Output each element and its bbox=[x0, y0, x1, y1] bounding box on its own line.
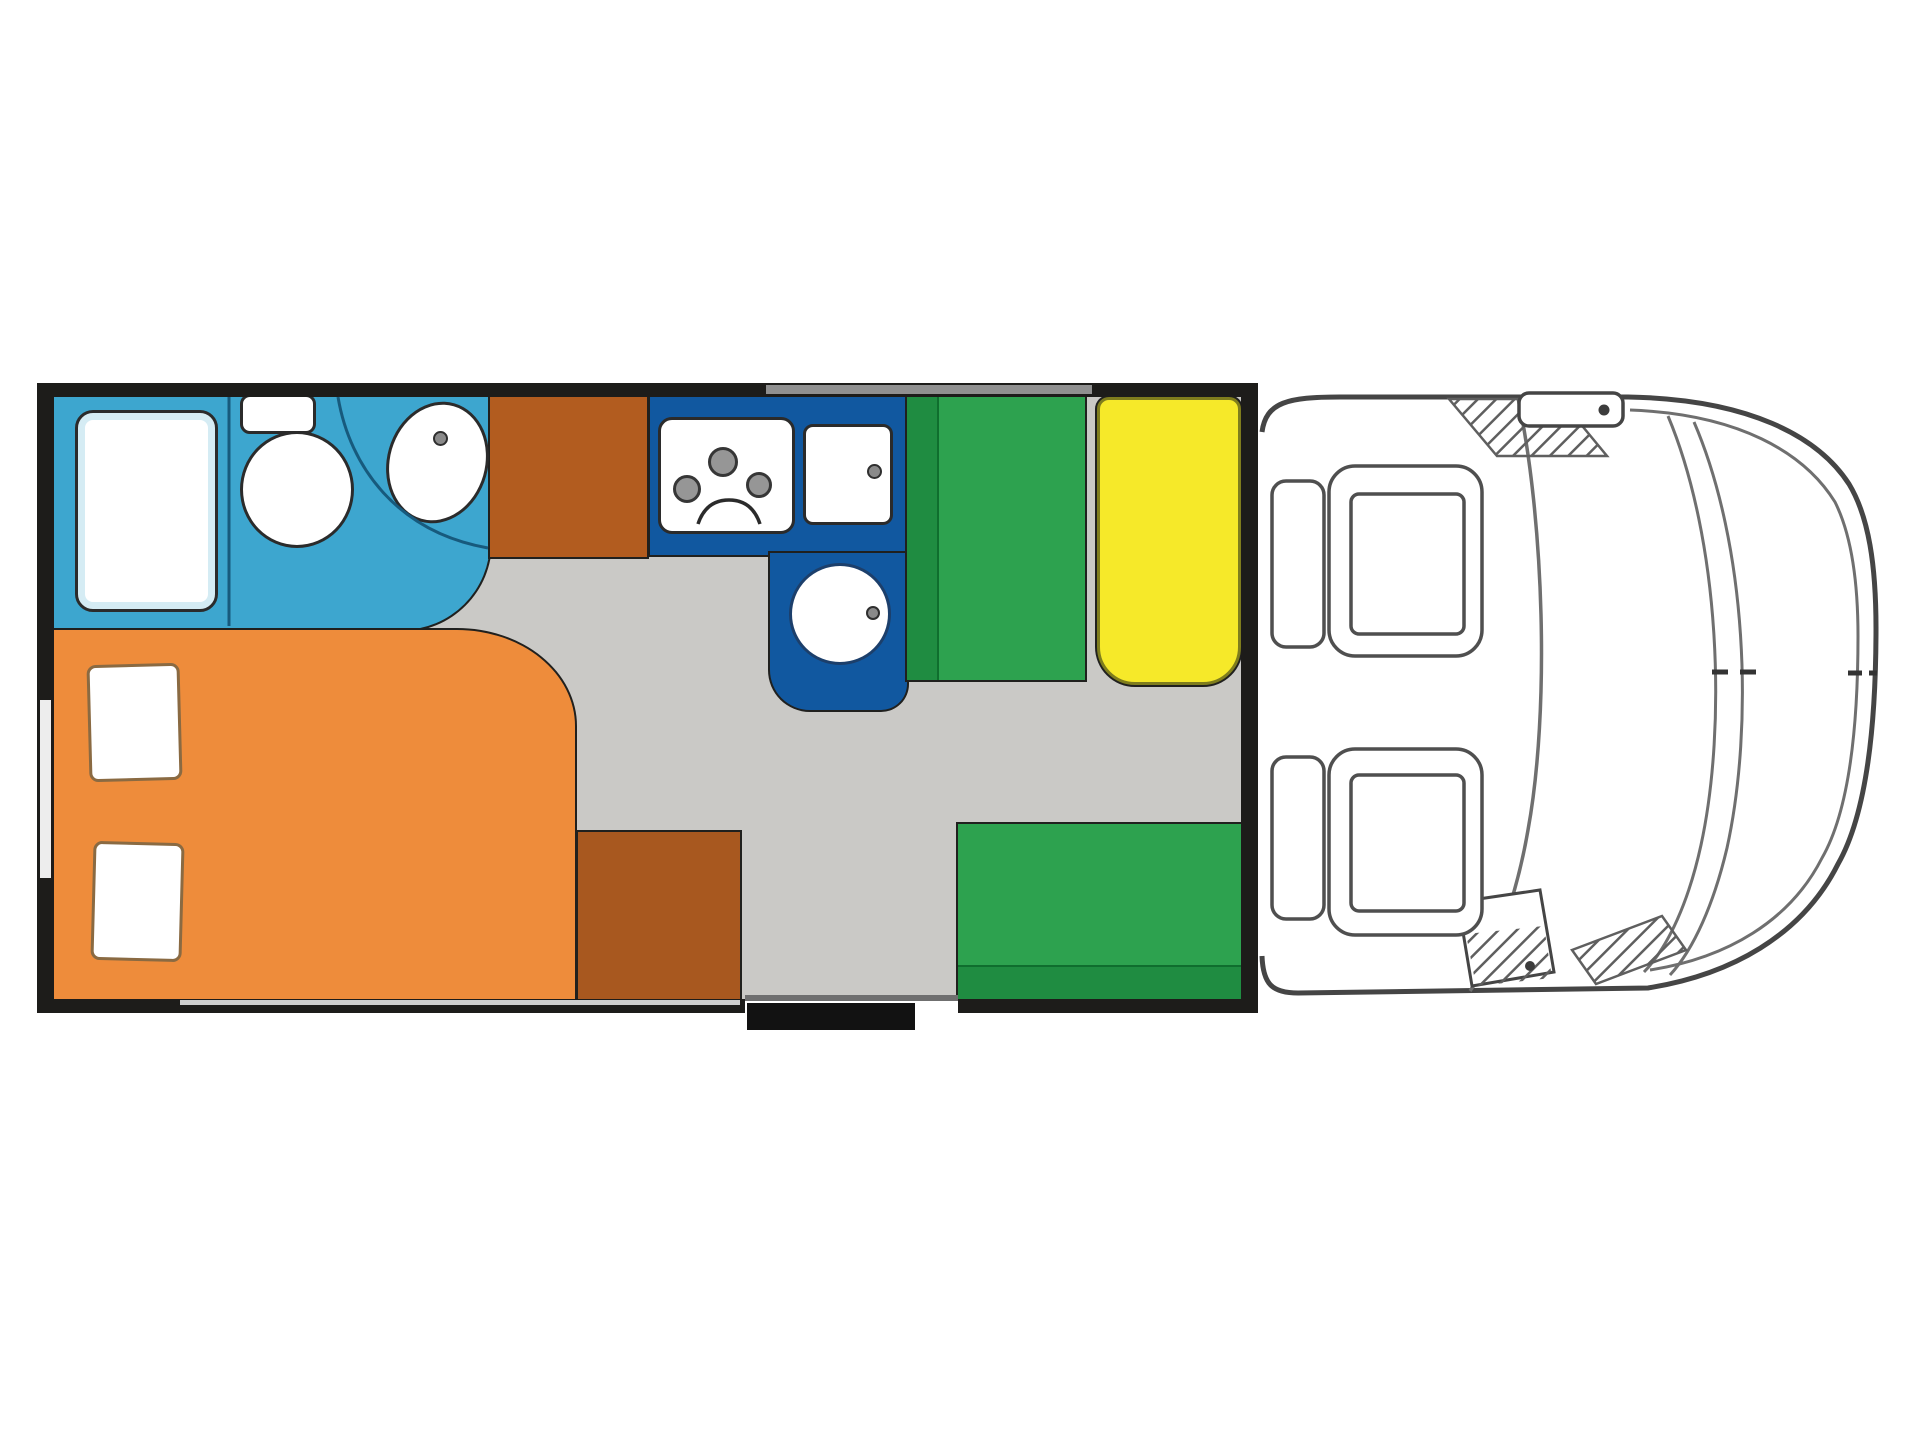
dinette-table bbox=[1097, 397, 1241, 685]
pillow bbox=[86, 663, 182, 782]
pillow bbox=[90, 841, 184, 962]
side-mirror-icon bbox=[1449, 393, 1623, 456]
shower-tray bbox=[75, 410, 218, 612]
dinette-bench-rear bbox=[958, 824, 1241, 999]
washbasin-faucet-icon bbox=[433, 431, 448, 446]
bench-backrest bbox=[958, 965, 1241, 999]
window-top bbox=[766, 385, 1092, 394]
cab-seat bbox=[1272, 749, 1482, 935]
sink-faucet-icon bbox=[867, 464, 882, 479]
burner-icon bbox=[708, 447, 738, 477]
window-left bbox=[40, 700, 51, 878]
wardrobe-entry bbox=[578, 832, 740, 999]
dinette-bench-front bbox=[907, 397, 1085, 680]
wall-cab-bulkhead bbox=[1241, 383, 1258, 1013]
wall-left bbox=[37, 383, 54, 1013]
wiper-tick-marks bbox=[1712, 672, 1877, 673]
cab-body-outline bbox=[1262, 397, 1876, 993]
burner-icon bbox=[746, 472, 772, 498]
burner-icon bbox=[673, 475, 701, 503]
round-sink-faucet-icon bbox=[866, 606, 880, 620]
bench-backrest bbox=[907, 397, 939, 680]
entry-door-opening bbox=[745, 995, 958, 1001]
wall-sill-line bbox=[180, 1000, 740, 1005]
side-mirror-icon bbox=[1458, 890, 1686, 986]
hood-line bbox=[1670, 422, 1742, 975]
wall-bottom bbox=[958, 999, 1258, 1013]
cab-front-inner-line bbox=[1630, 410, 1858, 970]
cab bbox=[1262, 393, 1877, 993]
entry-step bbox=[747, 1003, 915, 1030]
hood-line bbox=[1644, 416, 1716, 972]
toilet-bowl bbox=[240, 431, 354, 548]
toilet-cistern bbox=[240, 394, 316, 434]
motorhome-floorplan bbox=[0, 0, 1920, 1440]
wardrobe-rear bbox=[490, 397, 647, 557]
windshield-line bbox=[1470, 398, 1541, 991]
cab-seat bbox=[1272, 466, 1482, 656]
